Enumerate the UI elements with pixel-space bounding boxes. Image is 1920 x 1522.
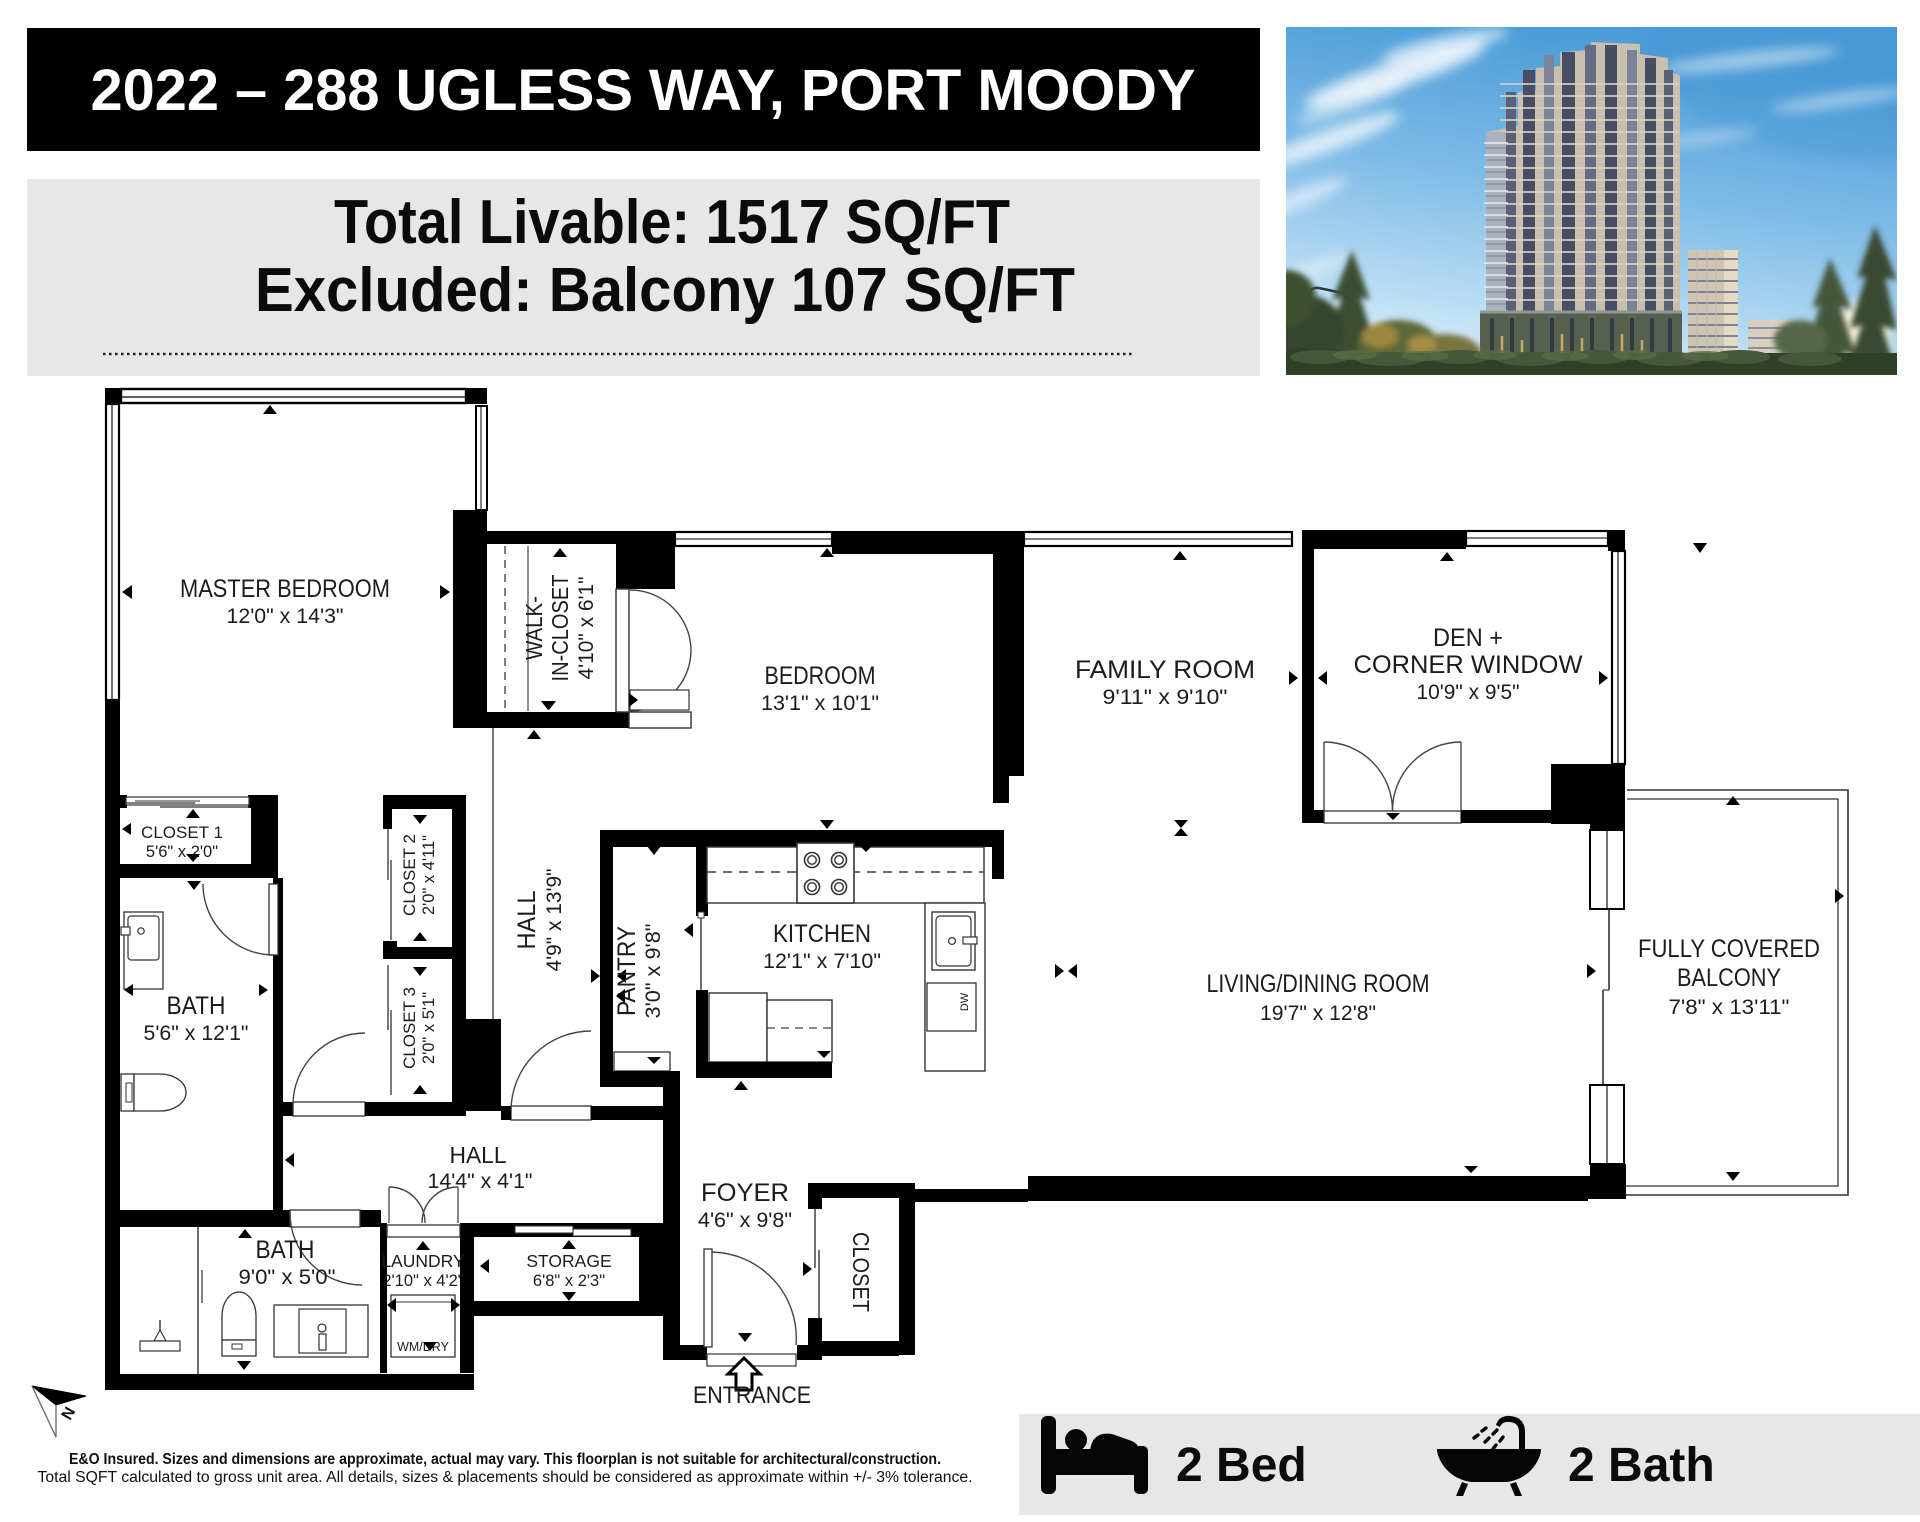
svg-text:LAUNDRY: LAUNDRY	[381, 1251, 465, 1271]
svg-text:CLOSET 3: CLOSET 3	[400, 987, 419, 1069]
svg-text:9'0" x 5'0": 9'0" x 5'0"	[239, 1266, 336, 1289]
svg-text:HALL: HALL	[513, 890, 541, 949]
svg-text:KITCHEN: KITCHEN	[773, 920, 871, 948]
svg-text:DEN +: DEN +	[1433, 624, 1503, 652]
svg-text:12'1" x 7'10": 12'1" x 7'10"	[763, 950, 881, 973]
svg-text:2'10" x 4'2": 2'10" x 4'2"	[382, 1272, 463, 1290]
svg-text:BATH: BATH	[167, 992, 226, 1020]
svg-text:WALK-: WALK-	[521, 596, 547, 660]
svg-text:MASTER BEDROOM: MASTER BEDROOM	[180, 575, 390, 603]
svg-text:9'11" x 9'10": 9'11" x 9'10"	[1103, 686, 1228, 709]
svg-text:CLOSET 2: CLOSET 2	[400, 834, 419, 916]
svg-text:6'8" x 2'3": 6'8" x 2'3"	[533, 1272, 605, 1290]
svg-text:7'8" x 13'11": 7'8" x 13'11"	[1669, 996, 1790, 1019]
svg-text:FULLY COVERED: FULLY COVERED	[1638, 935, 1820, 963]
svg-text:CLOSET: CLOSET	[848, 1232, 874, 1312]
svg-text:FAMILY ROOM: FAMILY ROOM	[1075, 656, 1255, 684]
svg-text:DW: DW	[959, 992, 971, 1011]
svg-text:12'0" x 14'3": 12'0" x 14'3"	[227, 605, 344, 628]
svg-text:2'0" x 4'11": 2'0" x 4'11"	[420, 835, 438, 915]
svg-text:13'1" x 10'1": 13'1" x 10'1"	[761, 692, 879, 715]
svg-text:CORNER WINDOW: CORNER WINDOW	[1354, 651, 1583, 679]
svg-text:STORAGE: STORAGE	[526, 1251, 611, 1271]
svg-text:BALCONY: BALCONY	[1677, 964, 1781, 992]
svg-text:2022 – 288 UGLESS WAY, PORT M: 2022 – 288 UGLESS WAY, PORT MOODY	[91, 58, 1196, 123]
svg-text:10'9" x 9'5": 10'9" x 9'5"	[1417, 681, 1520, 704]
svg-text:BEDROOM: BEDROOM	[765, 662, 876, 690]
svg-text:4'9" x 13'9": 4'9" x 13'9"	[543, 869, 566, 972]
svg-text:2 Bed: 2 Bed	[1176, 1439, 1307, 1492]
svg-text:2'0" x 5'1": 2'0" x 5'1"	[420, 992, 438, 1064]
svg-text:BATH: BATH	[256, 1236, 315, 1264]
svg-text:Excluded: Balcony 107 SQ/FT: Excluded: Balcony 107 SQ/FT	[255, 256, 1075, 325]
svg-text:Total SQFT calculated to gross: Total SQFT calculated to gross unit area…	[38, 1469, 973, 1486]
svg-text:IN-CLOSET: IN-CLOSET	[547, 575, 573, 682]
svg-text:CLOSET 1: CLOSET 1	[141, 823, 223, 842]
svg-text:LIVING/DINING ROOM: LIVING/DINING ROOM	[1207, 970, 1430, 998]
svg-text:PANTRY: PANTRY	[613, 926, 641, 1016]
svg-text:HALL: HALL	[450, 1142, 507, 1168]
svg-text:E&O Insured. Sizes and dimensi: E&O Insured. Sizes and dimensions are ap…	[69, 1451, 941, 1468]
svg-text:5'6" x 12'1": 5'6" x 12'1"	[144, 1022, 249, 1045]
svg-text:2 Bath: 2 Bath	[1568, 1439, 1715, 1492]
svg-text:19'7" x 12'8": 19'7" x 12'8"	[1260, 1002, 1376, 1025]
svg-text:FOYER: FOYER	[701, 1179, 789, 1207]
svg-text:4'6" x 9'8": 4'6" x 9'8"	[698, 1209, 792, 1232]
svg-text:4'10" x 6'1": 4'10" x 6'1"	[575, 577, 598, 680]
svg-text:3'0" x 9'8": 3'0" x 9'8"	[642, 924, 665, 1019]
svg-text:Total Livable: 1517 SQ/FT: Total Livable: 1517 SQ/FT	[334, 188, 1010, 257]
svg-text:5'6" x 2'0": 5'6" x 2'0"	[146, 843, 218, 861]
svg-text:ENTRANCE: ENTRANCE	[693, 1382, 811, 1409]
